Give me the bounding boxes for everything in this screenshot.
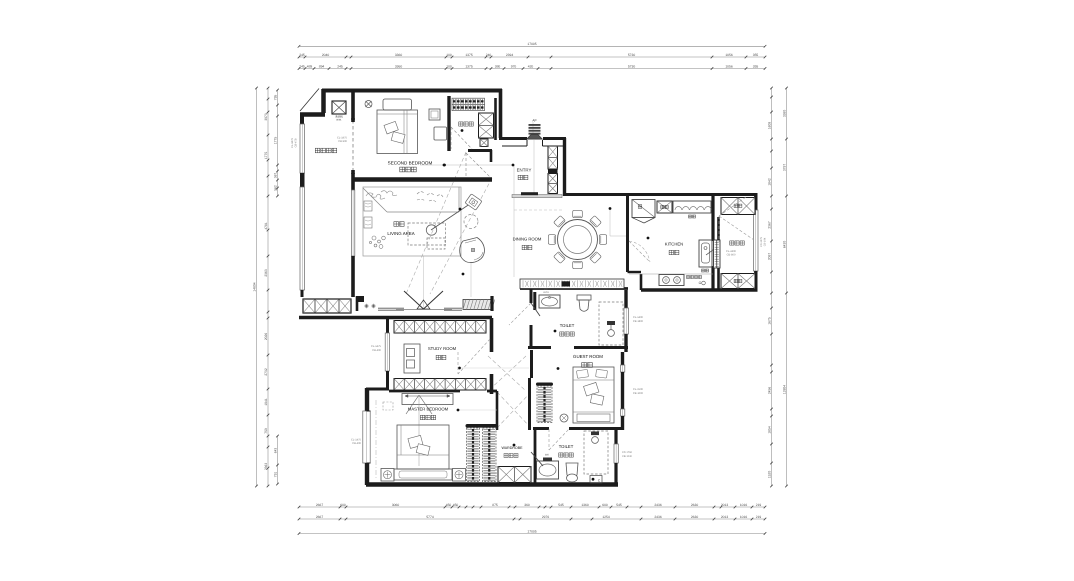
svg-text:1775: 1775 <box>273 137 277 145</box>
svg-text:1941: 1941 <box>264 398 268 406</box>
svg-text:100: 100 <box>446 53 452 57</box>
svg-text:360: 360 <box>524 503 530 507</box>
svg-text:ALTA: ALTA <box>543 291 549 294</box>
svg-text:CB-800: CB-800 <box>727 254 736 257</box>
svg-text:367: 367 <box>273 173 277 179</box>
svg-text:CB-1800: CB-1800 <box>633 320 644 323</box>
svg-text:800: 800 <box>544 288 549 291</box>
svg-text:355: 355 <box>753 64 759 68</box>
svg-text:100: 100 <box>446 64 452 68</box>
svg-text:3380: 3380 <box>782 110 786 118</box>
svg-text:ENTRY: ENTRY <box>517 168 532 173</box>
svg-text:245: 245 <box>299 64 305 68</box>
svg-text:489: 489 <box>307 64 313 68</box>
svg-text:1056: 1056 <box>725 64 733 68</box>
svg-text:643: 643 <box>273 448 277 454</box>
svg-text:2097: 2097 <box>767 253 771 261</box>
svg-text:3797: 3797 <box>782 164 786 172</box>
svg-text:750: 750 <box>264 428 268 434</box>
svg-text:2363: 2363 <box>264 463 268 471</box>
svg-text:795: 795 <box>273 95 277 101</box>
svg-text:1375: 1375 <box>465 53 473 57</box>
svg-text:DINING ROOM: DINING ROOM <box>513 237 542 242</box>
svg-text:1854: 1854 <box>767 426 771 434</box>
svg-text:WARDROBE: WARDROBE <box>501 446 523 450</box>
svg-text:5730: 5730 <box>628 64 636 68</box>
svg-text:CL-1475: CL-1475 <box>371 345 382 348</box>
svg-text:1775: 1775 <box>264 152 268 160</box>
svg-text:1609: 1609 <box>767 122 771 130</box>
svg-text:CB-194: CB-194 <box>764 237 767 246</box>
svg-text:2040: 2040 <box>322 53 330 57</box>
svg-text:875: 875 <box>492 503 498 507</box>
svg-text:KITCHEN: KITCHEN <box>665 242 683 247</box>
svg-text:AP: AP <box>532 119 536 123</box>
svg-text:2456: 2456 <box>767 387 771 395</box>
svg-text:600: 600 <box>340 503 346 507</box>
svg-text:2667: 2667 <box>316 503 324 507</box>
svg-text:1016: 1016 <box>740 515 748 519</box>
svg-text:TOILET: TOILET <box>559 444 574 449</box>
svg-text:2436: 2436 <box>654 503 662 507</box>
svg-text:CB-1040: CB-1040 <box>622 455 632 458</box>
svg-text:1016: 1016 <box>740 503 748 507</box>
svg-text:2630: 2630 <box>691 515 699 519</box>
svg-text:CB-900: CB-900 <box>338 140 347 143</box>
svg-text:1520: 1520 <box>767 471 771 479</box>
svg-text:17005: 17005 <box>527 529 536 533</box>
svg-text:W.M.: W.M. <box>336 119 342 122</box>
svg-text:545: 545 <box>558 503 564 507</box>
svg-text:219: 219 <box>756 503 762 507</box>
svg-text:LIVING AREA: LIVING AREA <box>387 231 414 236</box>
svg-text:2436: 2436 <box>654 515 662 519</box>
svg-text:CB-400: CB-400 <box>352 442 361 445</box>
svg-text:SECOND BEDROOM: SECOND BEDROOM <box>388 161 433 166</box>
svg-text:450: 450 <box>453 503 459 507</box>
svg-text:2013: 2013 <box>721 503 729 507</box>
svg-text:219: 219 <box>756 515 762 519</box>
svg-text:14804: 14804 <box>252 282 256 291</box>
svg-text:1375: 1375 <box>465 64 473 68</box>
svg-text:17005: 17005 <box>527 42 536 46</box>
svg-text:355: 355 <box>753 53 759 57</box>
svg-text:GUEST ROOM: GUEST ROOM <box>573 354 603 359</box>
svg-text:600: 600 <box>602 503 608 507</box>
svg-text:1254: 1254 <box>602 515 610 519</box>
svg-text:1056: 1056 <box>725 53 733 57</box>
svg-text:894: 894 <box>319 64 325 68</box>
svg-text:450: 450 <box>446 503 452 507</box>
svg-text:3360: 3360 <box>395 53 403 57</box>
svg-text:2976: 2976 <box>542 515 550 519</box>
svg-text:245: 245 <box>299 53 305 57</box>
svg-text:380: 380 <box>495 64 501 68</box>
svg-text:245: 245 <box>337 64 343 68</box>
svg-text:800: 800 <box>545 454 550 457</box>
svg-text:2667: 2667 <box>316 515 324 519</box>
svg-text:TOILET: TOILET <box>560 323 575 328</box>
svg-text:2363: 2363 <box>264 269 268 277</box>
svg-text:1842: 1842 <box>767 178 771 186</box>
svg-text:CB-1000: CB-1000 <box>633 392 644 395</box>
svg-text:545: 545 <box>616 503 622 507</box>
svg-text:2013: 2013 <box>721 515 729 519</box>
svg-text:STUDY ROOM: STUDY ROOM <box>428 346 457 351</box>
svg-text:CL-1500: CL-1500 <box>633 388 644 391</box>
svg-text:4781: 4781 <box>264 222 268 230</box>
svg-text:240: 240 <box>486 53 492 57</box>
svg-text:2026: 2026 <box>264 333 268 341</box>
svg-text:791: 791 <box>273 472 277 478</box>
svg-text:CD-1760: CD-1760 <box>622 451 633 454</box>
svg-text:5730: 5730 <box>628 53 636 57</box>
svg-text:5774: 5774 <box>426 515 434 519</box>
svg-text:562: 562 <box>273 185 277 191</box>
svg-text:3360: 3360 <box>395 64 403 68</box>
svg-text:1675: 1675 <box>767 317 771 325</box>
svg-text:3073: 3073 <box>264 113 268 121</box>
svg-text:2367: 2367 <box>767 221 771 229</box>
svg-text:6430: 6430 <box>782 241 786 249</box>
svg-text:CL-1400: CL-1400 <box>633 316 644 319</box>
svg-text:970: 970 <box>511 64 517 68</box>
svg-text:1360: 1360 <box>581 503 589 507</box>
svg-text:3060: 3060 <box>392 503 400 507</box>
svg-text:420: 420 <box>528 64 534 68</box>
svg-text:2732: 2732 <box>264 368 268 376</box>
svg-text:CB-400: CB-400 <box>372 349 381 352</box>
svg-text:CB-478: CB-478 <box>295 138 298 147</box>
svg-text:12804: 12804 <box>782 385 786 394</box>
svg-text:G: G <box>699 281 702 285</box>
svg-text:2394: 2394 <box>506 53 514 57</box>
svg-text:2630: 2630 <box>691 503 699 507</box>
